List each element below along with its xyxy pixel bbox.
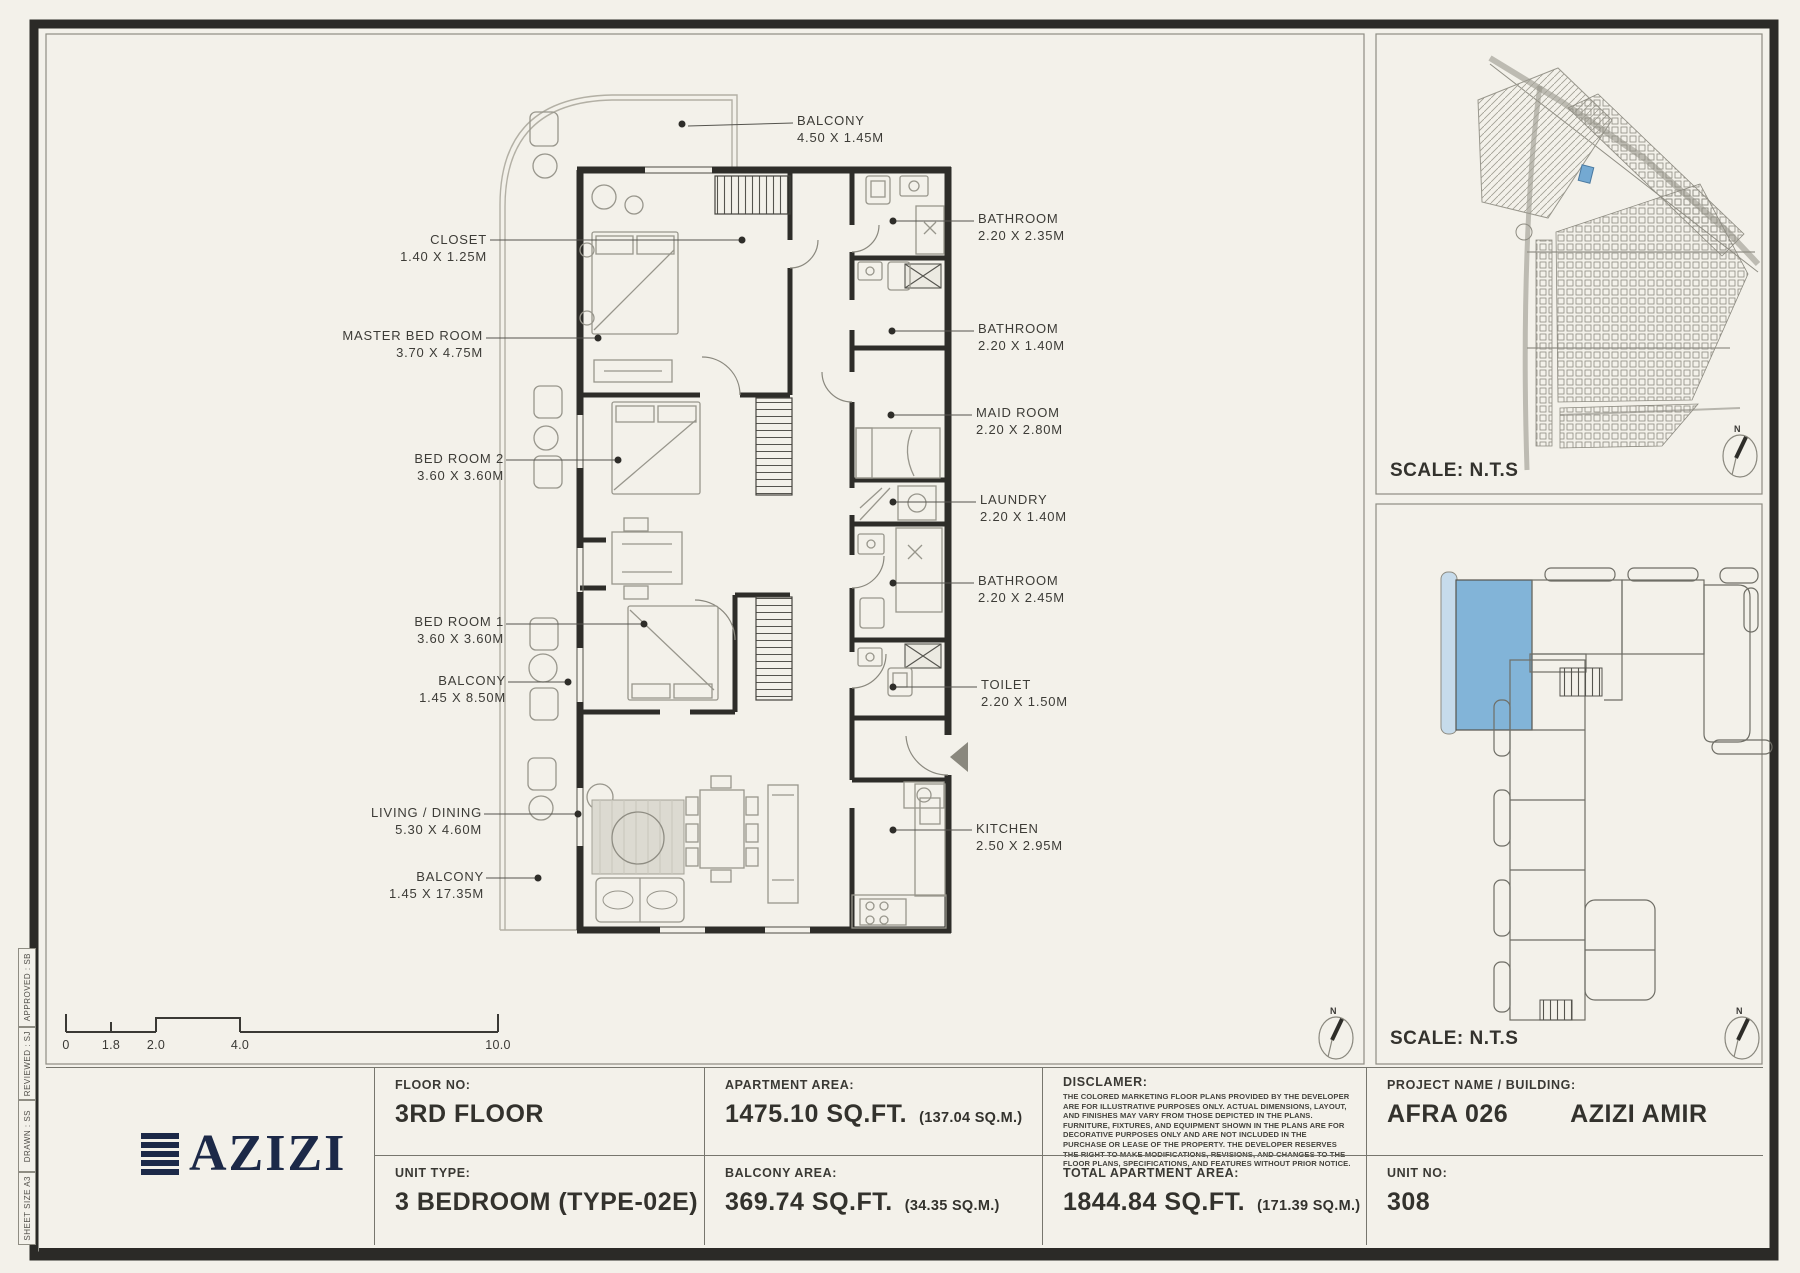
project-name: AFRA 026 xyxy=(1387,1100,1508,1129)
unit-no-label: UNIT NO: xyxy=(1367,1156,1763,1180)
keyplan-scale-label: SCALE: N.T.S xyxy=(1390,1028,1518,1050)
side-strip-approved: APPROVED : SB xyxy=(18,948,36,1027)
disclaimer-cell: DISCLAMER: THE COLORED MARKETING FLOOR P… xyxy=(1042,1067,1366,1155)
azizi-logo-text: AZIZI xyxy=(189,1124,346,1183)
room-label-bathroom-1: BATHROOM 2.20 X 2.35M xyxy=(978,210,1065,244)
map-scale-label: SCALE: N.T.S xyxy=(1390,460,1518,482)
total-area-sqft: 1844.84 SQ.FT. xyxy=(1063,1188,1245,1216)
room-label-toilet: TOILET 2.20 X 1.50M xyxy=(981,676,1068,710)
room-label-bathroom-2: BATHROOM 2.20 X 1.40M xyxy=(978,320,1065,354)
room-label-closet: CLOSET 1.40 X 1.25M xyxy=(400,231,487,265)
room-name: BED ROOM 1 xyxy=(414,613,504,630)
room-label-master-bed-room: MASTER BED ROOM 3.70 X 4.75M xyxy=(342,327,483,361)
unit-type-cell: UNIT TYPE: 3 BEDROOM (TYPE-02E) xyxy=(374,1155,704,1245)
scale-tick: 0 xyxy=(62,1038,69,1052)
floor-no-value: 3RD FLOOR xyxy=(375,1092,704,1129)
room-label-bed-room-1: BED ROOM 1 3.60 X 3.60M xyxy=(414,613,504,647)
total-area-value: 1844.84 SQ.FT.(171.39 SQ.M.) xyxy=(1043,1180,1366,1217)
room-dims: 2.20 X 1.50M xyxy=(981,693,1068,710)
room-name: LAUNDRY xyxy=(980,491,1067,508)
balcony-area-sqm: (34.35 SQ.M.) xyxy=(905,1198,1000,1214)
room-dims: 2.20 X 2.35M xyxy=(978,227,1065,244)
room-dims: 2.50 X 2.95M xyxy=(976,837,1063,854)
room-name: MASTER BED ROOM xyxy=(342,327,483,344)
room-name: KITCHEN xyxy=(976,820,1063,837)
floor-plan-drawing xyxy=(484,95,977,933)
room-name: BALCONY xyxy=(419,672,506,689)
room-name: BALCONY xyxy=(797,112,884,129)
azizi-logo-bars-icon xyxy=(141,1133,179,1175)
unit-type-label: UNIT TYPE: xyxy=(375,1156,704,1180)
balcony-area-value: 369.74 SQ.FT.(34.35 SQ.M.) xyxy=(705,1180,1042,1217)
scale-tick: 1.8 xyxy=(102,1038,120,1052)
side-strip-reviewed: REVIEWED : SJ xyxy=(18,1027,36,1100)
room-label-maid-room: MAID ROOM 2.20 X 2.80M xyxy=(976,404,1063,438)
scale-tick: 10.0 xyxy=(485,1038,511,1052)
room-label-bed-room-2: BED ROOM 2 3.60 X 3.60M xyxy=(414,450,504,484)
room-label-balcony-top: BALCONY 4.50 X 1.45M xyxy=(797,112,884,146)
room-dims: 3.70 X 4.75M xyxy=(342,344,483,361)
scale-tick: 4.0 xyxy=(231,1038,249,1052)
room-label-laundry: LAUNDRY 2.20 X 1.40M xyxy=(980,491,1067,525)
room-dims: 2.20 X 1.40M xyxy=(980,508,1067,525)
north-compass-map xyxy=(1723,435,1757,477)
unit-no-cell: UNIT NO: 308 xyxy=(1366,1155,1763,1245)
room-name: BATHROOM xyxy=(978,572,1065,589)
room-label-bathroom-3: BATHROOM 2.20 X 2.45M xyxy=(978,572,1065,606)
room-name: MAID ROOM xyxy=(976,404,1063,421)
total-area-label: TOTAL APARTMENT AREA: xyxy=(1043,1156,1366,1180)
room-name: LIVING / DINING xyxy=(371,804,482,821)
balcony-area-sqft: 369.74 SQ.FT. xyxy=(725,1188,893,1216)
room-dims: 4.50 X 1.45M xyxy=(797,129,884,146)
side-strip-drawn: DRAWN : SS xyxy=(18,1100,36,1172)
total-area-sqm: (171.39 SQ.M.) xyxy=(1257,1198,1360,1214)
scale-tick: 2.0 xyxy=(147,1038,165,1052)
project-name-label: PROJECT NAME / BUILDING: xyxy=(1367,1068,1763,1092)
side-strip-text: SHEET SIZE A3 xyxy=(23,1176,32,1241)
room-name: BALCONY xyxy=(389,868,484,885)
apartment-area-value: 1475.10 SQ.FT.(137.04 SQ.M.) xyxy=(705,1092,1042,1129)
unit-no-value: 308 xyxy=(1367,1180,1763,1217)
room-dims: 5.30 X 4.60M xyxy=(371,821,482,838)
total-area-cell: TOTAL APARTMENT AREA: 1844.84 SQ.FT.(171… xyxy=(1042,1155,1366,1245)
room-dims: 1.45 X 8.50M xyxy=(419,689,506,706)
apartment-area-label: APARTMENT AREA: xyxy=(705,1068,1042,1092)
building-name: AZIZI AMIR xyxy=(1570,1100,1707,1129)
room-dims: 1.45 X 17.35M xyxy=(389,885,484,902)
room-dims: 2.20 X 2.80M xyxy=(976,421,1063,438)
room-dims: 1.40 X 1.25M xyxy=(400,248,487,265)
north-compass-main xyxy=(1319,1017,1353,1059)
entry-marker xyxy=(950,742,968,772)
apartment-area-sqm: (137.04 SQ.M.) xyxy=(919,1110,1022,1126)
north-compass-keyplan xyxy=(1725,1017,1759,1059)
disclaimer-label: DISCLAMER: xyxy=(1043,1068,1366,1089)
room-label-living-dining: LIVING / DINING 5.30 X 4.60M xyxy=(371,804,482,838)
room-dims: 2.20 X 2.45M xyxy=(978,589,1065,606)
north-label-keyplan: N xyxy=(1736,1006,1743,1016)
side-strip-text: APPROVED : SB xyxy=(23,953,32,1021)
room-name: CLOSET xyxy=(400,231,487,248)
unit-type-value: 3 BEDROOM (TYPE-02E) xyxy=(375,1180,704,1217)
room-label-balcony-bottom: BALCONY 1.45 X 17.35M xyxy=(389,868,484,902)
north-label-map: N xyxy=(1734,424,1741,434)
scale-bar-graphic xyxy=(66,1014,498,1032)
key-plan-balcony-highlight xyxy=(1441,572,1457,734)
key-plan xyxy=(1441,568,1772,1020)
project-name-cell: PROJECT NAME / BUILDING: AFRA 026 AZIZI … xyxy=(1366,1067,1763,1155)
room-name: BATHROOM xyxy=(978,320,1065,337)
side-strip-text: REVIEWED : SJ xyxy=(23,1031,32,1096)
floor-no-cell: FLOOR NO: 3RD FLOOR xyxy=(374,1067,704,1155)
room-name: BED ROOM 2 xyxy=(414,450,504,467)
room-label-balcony-mid: BALCONY 1.45 X 8.50M xyxy=(419,672,506,706)
room-dims: 3.60 X 3.60M xyxy=(414,467,504,484)
room-name: BATHROOM xyxy=(978,210,1065,227)
balcony-area-label: BALCONY AREA: xyxy=(705,1156,1042,1180)
room-dims: 2.20 X 1.40M xyxy=(978,337,1065,354)
balcony-area-cell: BALCONY AREA: 369.74 SQ.FT.(34.35 SQ.M.) xyxy=(704,1155,1042,1245)
room-label-kitchen: KITCHEN 2.50 X 2.95M xyxy=(976,820,1063,854)
project-name-value: AFRA 026 AZIZI AMIR xyxy=(1367,1092,1763,1129)
azizi-logo: AZIZI xyxy=(141,1124,346,1183)
apartment-area-cell: APARTMENT AREA: 1475.10 SQ.FT.(137.04 SQ… xyxy=(704,1067,1042,1155)
apartment-area-sqft: 1475.10 SQ.FT. xyxy=(725,1100,907,1128)
side-strip-sheet-size: SHEET SIZE A3 xyxy=(18,1172,36,1245)
room-dims: 3.60 X 3.60M xyxy=(414,630,504,647)
floor-plan-sheet: N N N CLOSET 1.40 X 1.25M MASTER BED ROO… xyxy=(0,0,1800,1273)
title-block-logo-cell: AZIZI xyxy=(46,1067,374,1245)
floor-no-label: FLOOR NO: xyxy=(375,1068,704,1092)
room-name: TOILET xyxy=(981,676,1068,693)
side-strip-text: DRAWN : SS xyxy=(23,1110,32,1162)
north-label-main: N xyxy=(1330,1006,1337,1016)
site-map xyxy=(1478,58,1758,470)
